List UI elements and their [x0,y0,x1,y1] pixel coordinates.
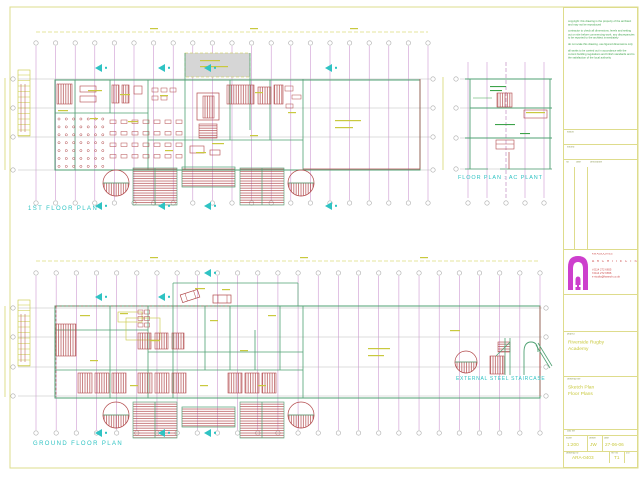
revision-table: no date description [564,159,637,249]
company-name: KW ASSOCIATES [592,253,613,256]
staircase-detail [455,338,552,375]
section-arrow-icon [204,269,216,277]
section-arrow-icon [158,293,170,301]
first-floor-plan [5,28,435,210]
date-value: 27-06-06 [605,443,624,448]
cad-file-label: cad file [567,430,575,433]
status-row: status [564,129,637,144]
drawing-title-box: drawing title Sketch Plan Floor Plans [564,376,637,429]
title-block: copyright: this drawing is the property … [563,7,638,468]
rev-value: T1 [614,456,619,461]
section-arrow-icon [204,429,216,437]
ground-floor-plan [5,257,548,438]
rev-col-no: no [566,161,569,164]
extra-label: c/o [626,452,629,455]
car-symbol [180,289,200,302]
section-arrow-icon [325,202,337,210]
note-paragraph: do not scale this drawing. use figured d… [568,43,636,46]
company-block: KW ASSOCIATES A R C H I T E C T S t 0114… [564,249,637,294]
scale-label: scale [566,437,572,440]
section-arrow-icon [325,64,337,72]
drawing-title-label: drawing title [567,378,580,381]
note-paragraph: all works to be carried out in accordanc… [568,50,636,60]
drawing-no-label: drawing no [566,452,578,455]
first-floor-plan-title: 1ST FLOOR PLAN [28,206,98,212]
issued-row: issued [564,144,637,159]
drawing-no-row: drawing no ARA-0403 rev no T1 c/o [564,451,637,463]
spacer-section [564,294,637,331]
drawing-no-value: ARA-0403 [572,456,594,461]
rev-col-description: description [590,161,602,164]
status-label: status [567,131,574,134]
drawn-value: JW [590,443,597,448]
cad-linework [0,0,640,480]
company-title: A R C H I T E C T S [592,260,637,263]
architects-logo-icon [567,254,589,292]
project-label: project [567,333,575,336]
section-arrow-icon [158,64,170,72]
ac-plant-plan [443,62,552,205]
company-contact: t 0114 272 6655 f 0114 272 6656 e studio… [592,268,637,279]
drawn-label: drawn [589,437,596,440]
section-arrow-icon [95,293,107,301]
project-name: Riverside Rugby Academy [568,340,604,353]
note-paragraph: contractor to check all dimensions, leve… [568,30,636,40]
ac-plant-plan-title: FLOOR PLAN : AC PLANT [458,175,543,181]
drawing-title-value: Sketch Plan Floor Plans [568,385,594,398]
contact-line: e studio@kwarch.co.uk [592,275,637,279]
rev-label: rev no [611,452,618,455]
section-arrow-icon [95,429,107,437]
ground-floor-plan-title: GROUND FLOOR PLAN [33,441,123,447]
issued-label: issued [567,146,574,149]
drawing-sheet: 1ST FLOOR PLAN GROUND FLOOR PLAN FLOOR P… [0,0,640,480]
car-symbol [213,295,231,303]
date-label: date [604,437,609,440]
project-box: project Riverside Rugby Academy [564,331,637,376]
title-block-notes: copyright: this drawing is the property … [568,20,636,63]
section-arrow-icon [95,64,107,72]
note-paragraph: copyright: this drawing is the property … [568,20,636,27]
staircase-detail-title: EXTERNAL STEEL STAIRCASE [456,376,545,382]
scale-value: 1:200 [567,443,579,448]
fields-row: scale 1:200 drawn JW date 27-06-06 [564,435,637,451]
rev-col-date: date [576,161,581,164]
